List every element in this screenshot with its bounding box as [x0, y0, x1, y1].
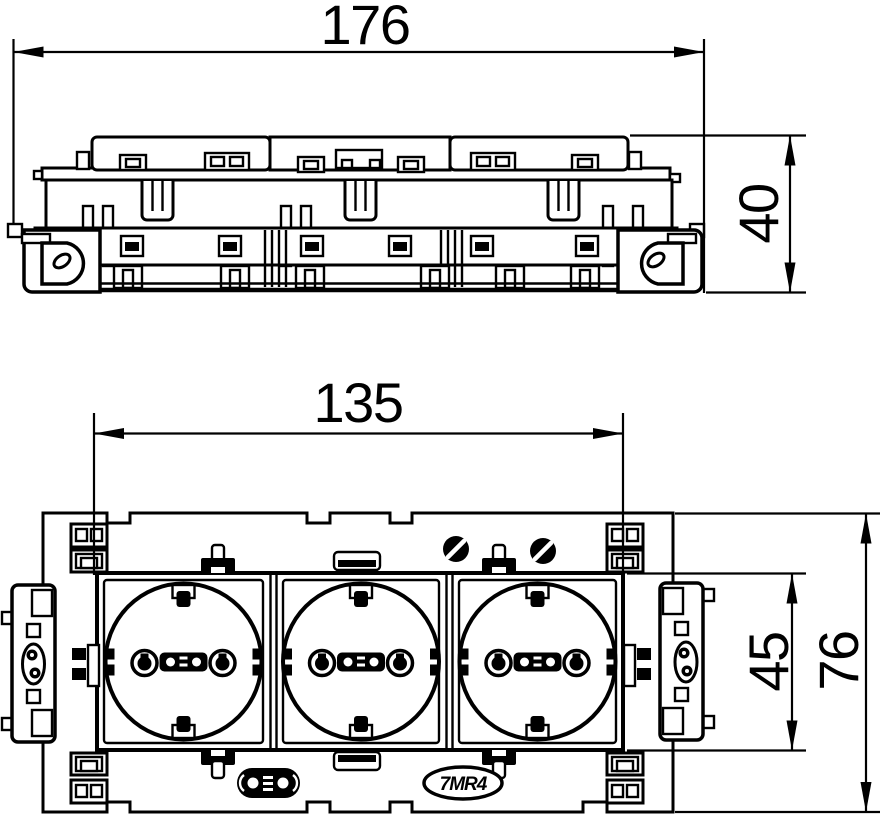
- screw-icon-2: [530, 538, 556, 564]
- cover-latch: [398, 157, 424, 172]
- end-pin-right: [629, 152, 641, 169]
- rail-window: [471, 236, 493, 256]
- end-pin-left: [77, 152, 89, 169]
- cover-arch-clip: [336, 150, 382, 168]
- body-u-clip: [548, 181, 579, 220]
- socket-3: [459, 584, 617, 740]
- coupler-left: [2, 585, 55, 742]
- dim-label-176: 176: [321, 0, 410, 56]
- cover-latch: [120, 155, 146, 170]
- dim-label-45: 45: [737, 632, 800, 691]
- cover-latch-double: [205, 153, 249, 170]
- plate-clip-bottom-left-a: [71, 753, 107, 775]
- badge-logo-text: 7MR4: [440, 774, 488, 795]
- body-u-clip: [142, 181, 173, 220]
- screw-icon-1: [443, 536, 469, 562]
- plate-clip-top-right-b: [607, 550, 643, 572]
- rail-window: [219, 236, 241, 256]
- end-cap-left: [8, 224, 100, 292]
- socket-2: [282, 584, 440, 740]
- badge-logo: 7MR4: [424, 767, 502, 799]
- cover-latch-double: [471, 153, 515, 170]
- coupler-right: [660, 583, 714, 740]
- front-view: 7MR4: [2, 513, 714, 812]
- plate-clip-bottom-right-b: [607, 780, 643, 803]
- rail-window: [389, 236, 411, 256]
- body-u-clip: [345, 181, 376, 220]
- end-cap-right: [618, 224, 704, 292]
- plate-clip-bottom-left-b: [71, 780, 107, 803]
- cover-latch: [572, 155, 598, 170]
- mounting-rail: [35, 228, 677, 265]
- technical-drawing: 7MR4 176 40 135 45: [0, 0, 881, 814]
- plate-clip-top-left-a: [71, 524, 107, 547]
- cover-latch: [298, 157, 324, 172]
- plate-clip-bottom-right-a: [607, 753, 643, 775]
- end-tab-left: [8, 224, 22, 237]
- screw-boss-left: [42, 243, 83, 284]
- drawing-canvas: 7MR4 176 40 135 45: [0, 0, 881, 814]
- dim-label-40: 40: [727, 184, 790, 243]
- dim-label-76: 76: [807, 631, 870, 690]
- socket-1: [105, 584, 263, 740]
- rail-window: [576, 236, 598, 256]
- plate-clip-top-left-b: [71, 550, 107, 572]
- rail-window: [121, 236, 143, 256]
- body: [46, 180, 672, 228]
- cover-caps: [77, 137, 641, 172]
- badge-socket-symbol: [237, 768, 300, 798]
- side-view: [8, 137, 704, 292]
- flat-clip-bottom: [334, 752, 380, 770]
- dim-label-135: 135: [314, 371, 403, 434]
- plate-clip-top-right-a: [607, 524, 643, 547]
- feet-row: [42, 266, 668, 290]
- rail-window: [301, 236, 323, 256]
- flat-clip-top: [334, 552, 380, 570]
